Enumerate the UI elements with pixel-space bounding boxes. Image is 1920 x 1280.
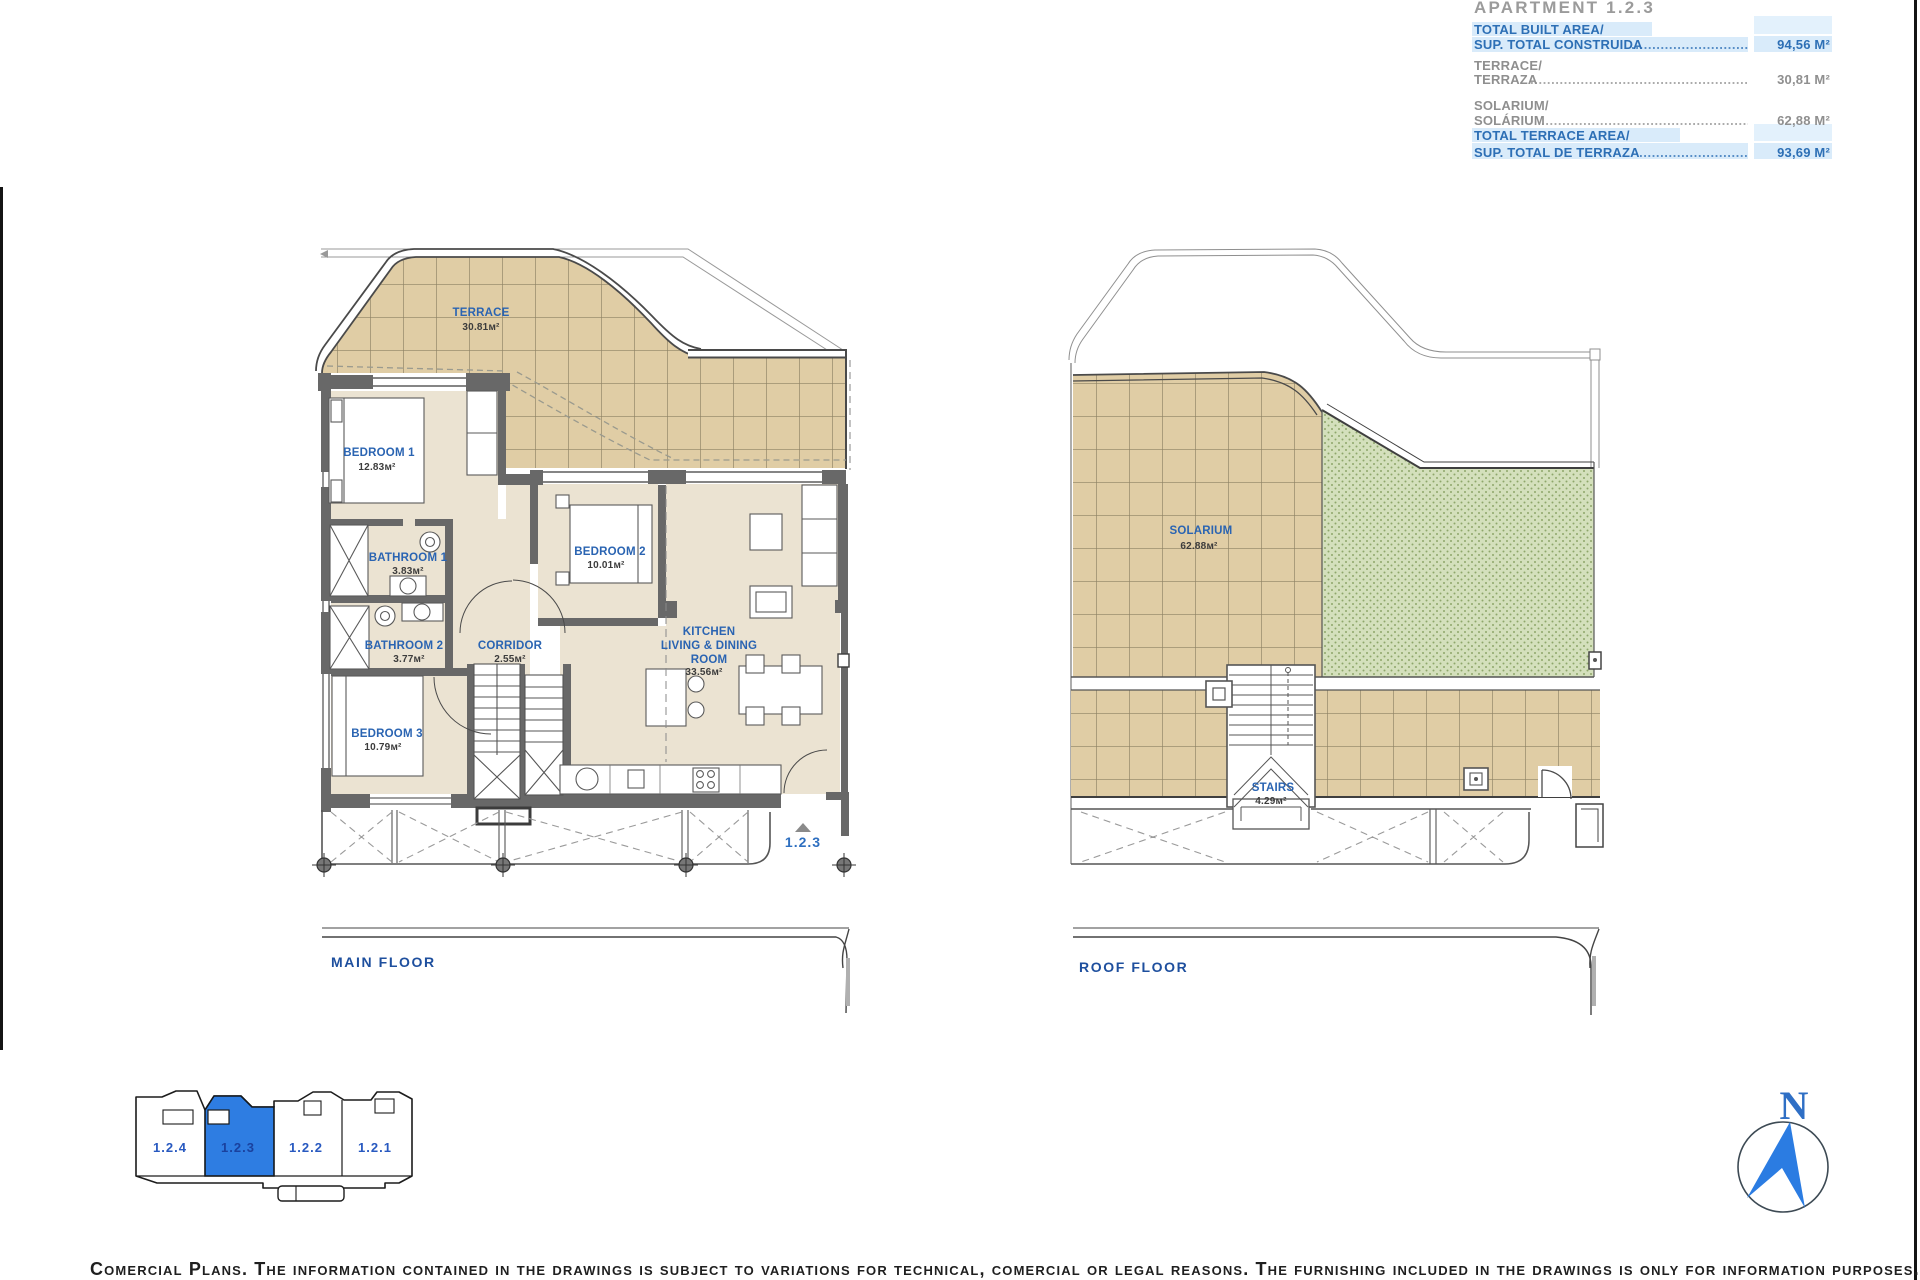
svg-text:BATHROOM 1: BATHROOM 1	[369, 552, 448, 564]
svg-text:TOTAL BUILT AREA/: TOTAL BUILT AREA/	[1474, 22, 1604, 37]
svg-text:10.79м²: 10.79м²	[364, 742, 402, 753]
svg-text:TERRAZA: TERRAZA	[1474, 72, 1538, 87]
svg-text:LIVING & DINING: LIVING & DINING	[661, 640, 757, 652]
svg-text:SUP. TOTAL DE TERRAZA: SUP. TOTAL DE TERRAZA	[1474, 145, 1640, 160]
svg-text:BATHROOM 2: BATHROOM 2	[365, 640, 443, 652]
svg-text:BEDROOM 1: BEDROOM 1	[343, 447, 415, 459]
svg-text:BEDROOM 3: BEDROOM 3	[351, 728, 422, 740]
svg-text:APARTMENT 1.2.3: APARTMENT 1.2.3	[1474, 0, 1655, 17]
svg-text:SOLARIUM: SOLARIUM	[1170, 525, 1233, 537]
svg-text:1.2.4: 1.2.4	[153, 1140, 187, 1155]
svg-text:MAIN FLOOR: MAIN FLOOR	[331, 954, 436, 970]
svg-text:10.01м²: 10.01м²	[587, 560, 625, 571]
svg-text:SUP. TOTAL CONSTRUIDA: SUP. TOTAL CONSTRUIDA	[1474, 37, 1643, 52]
svg-text:SOLARIUM/: SOLARIUM/	[1474, 98, 1549, 113]
svg-text:KITCHEN: KITCHEN	[683, 626, 736, 638]
svg-text:2.55м²: 2.55м²	[494, 654, 526, 665]
svg-text:N: N	[1780, 1083, 1809, 1128]
svg-text:30.81м²: 30.81м²	[462, 322, 500, 333]
svg-text:93,69 M²: 93,69 M²	[1777, 145, 1830, 160]
svg-text:1.2.2: 1.2.2	[289, 1140, 323, 1155]
svg-text:TOTAL TERRACE AREA/: TOTAL TERRACE AREA/	[1474, 128, 1630, 143]
svg-text:1.2.3: 1.2.3	[221, 1140, 255, 1155]
svg-text:Comercial Plans. The informati: Comercial Plans. The information contain…	[90, 1259, 1920, 1279]
svg-text:1.2.3: 1.2.3	[785, 834, 821, 850]
svg-text:CORRIDOR: CORRIDOR	[478, 640, 543, 652]
svg-text:94,56 M²: 94,56 M²	[1777, 37, 1830, 52]
svg-text:62,88 M²: 62,88 M²	[1777, 113, 1830, 128]
svg-text:3.83м²: 3.83м²	[392, 566, 424, 577]
svg-text:30,81 M²: 30,81 M²	[1777, 72, 1830, 87]
svg-text:ROOF FLOOR: ROOF FLOOR	[1079, 959, 1188, 975]
svg-text:SOLÁRIUM: SOLÁRIUM	[1474, 113, 1545, 128]
svg-text:1.2.1: 1.2.1	[358, 1140, 392, 1155]
svg-text:4.29м²: 4.29м²	[1255, 796, 1287, 807]
svg-text:33.56м²: 33.56м²	[685, 667, 723, 678]
svg-text:3.77м²: 3.77м²	[393, 654, 425, 665]
svg-text:TERRACE: TERRACE	[453, 307, 510, 319]
svg-text:TERRACE/: TERRACE/	[1474, 58, 1542, 73]
svg-text:BEDROOM 2: BEDROOM 2	[574, 546, 645, 558]
svg-text:12.83м²: 12.83м²	[358, 462, 396, 473]
svg-text:ROOM: ROOM	[691, 654, 728, 666]
svg-text:STAIRS: STAIRS	[1252, 782, 1295, 794]
svg-text:62.88м²: 62.88м²	[1180, 541, 1218, 552]
